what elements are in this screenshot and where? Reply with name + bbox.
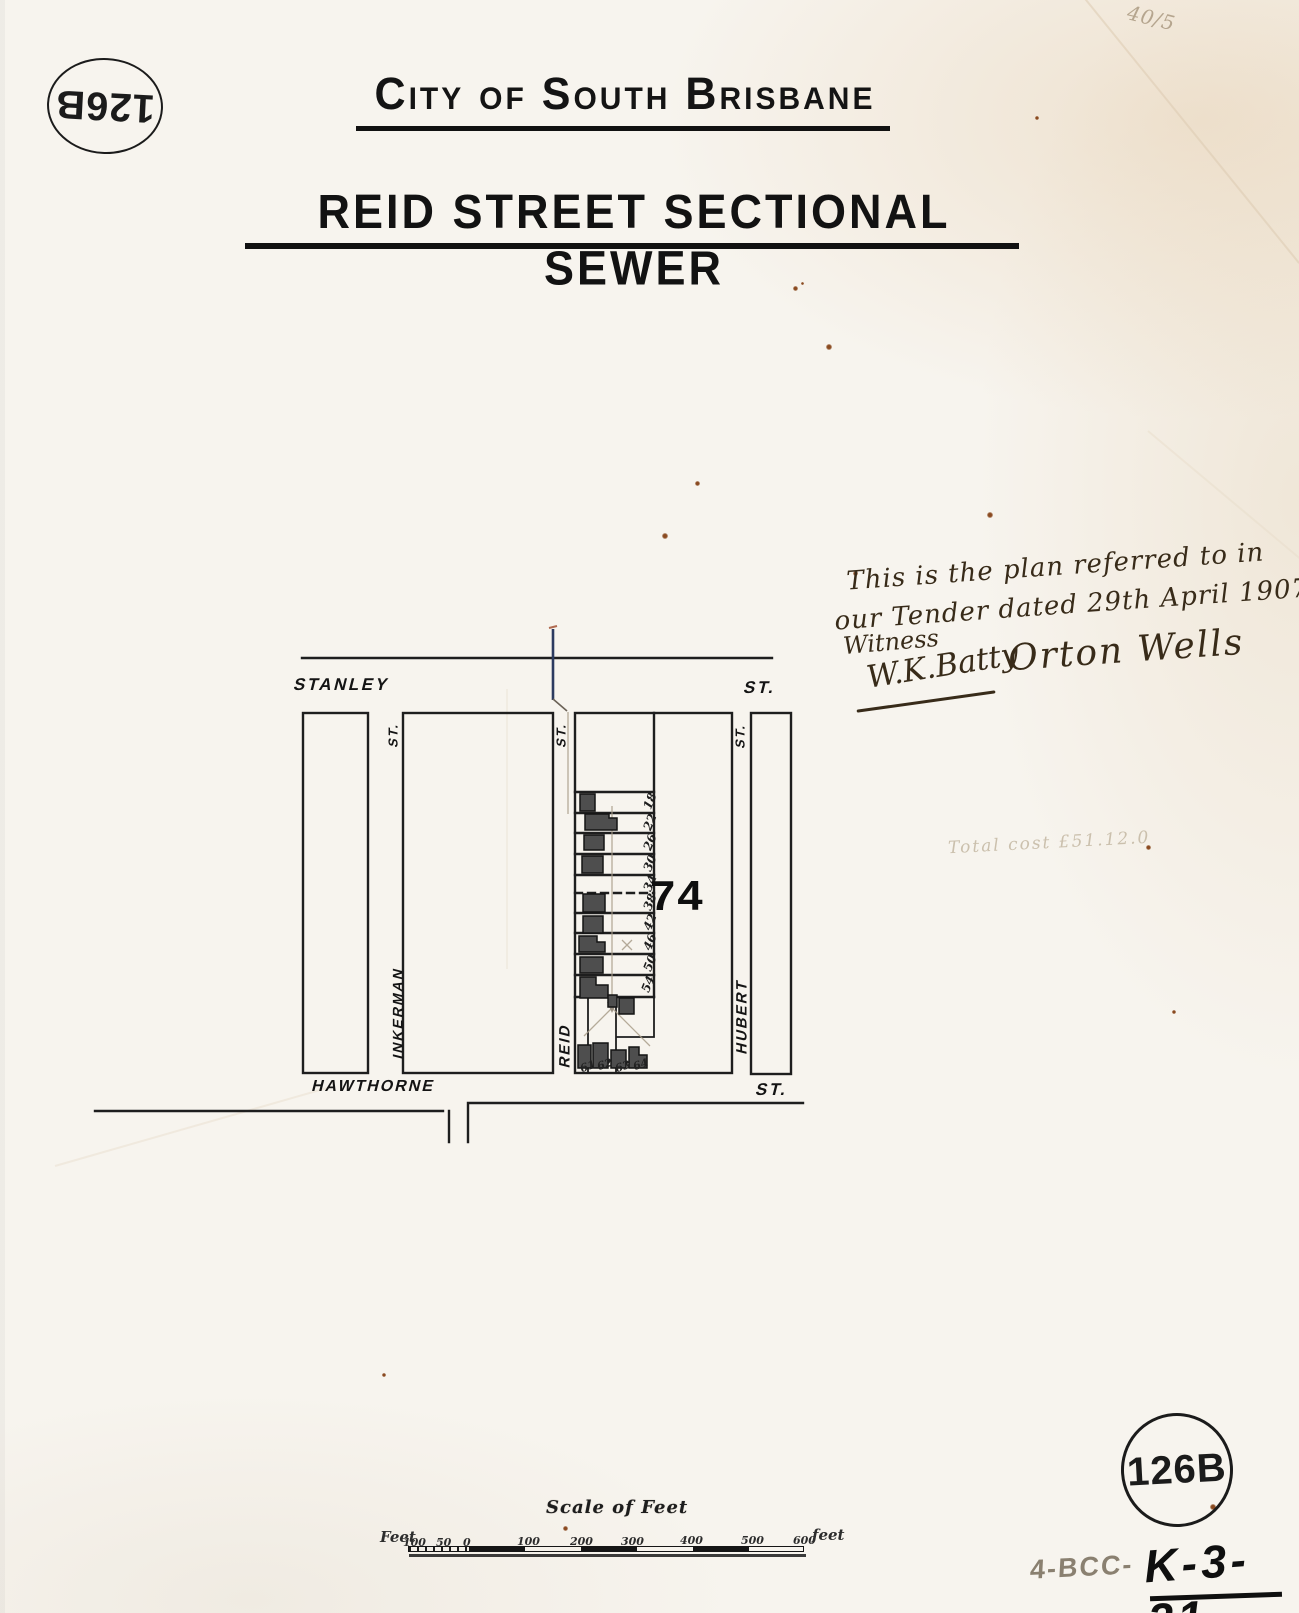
subtitle-underline: [245, 243, 1019, 249]
lot-number: 64: [631, 1056, 650, 1073]
stain-dot: [987, 512, 993, 518]
scale-bar-segment: [469, 1547, 525, 1551]
stain-dot: [382, 1373, 386, 1377]
stanley-st-abbrev: ST.: [742, 678, 779, 698]
hawthorne-street-label: HAWTHORNE: [310, 1078, 437, 1096]
building-footprints: [578, 794, 647, 1068]
lot-number: 22: [640, 811, 660, 833]
inkerman-street-label: INKERMAN: [390, 961, 405, 1065]
corner-pencil-note: 40/5: [1125, 0, 1178, 35]
lot-number: 62: [595, 1056, 614, 1073]
pencil-survey-marks: [568, 712, 650, 1046]
scale-bar-segment: [693, 1547, 749, 1551]
crease-line: [1081, 0, 1299, 264]
file-number-stamp-bottom-right: 126B: [1117, 1409, 1237, 1531]
page-title: City of South Brisbane: [330, 70, 920, 119]
scale-bar-title: Scale of Feet: [546, 1497, 688, 1518]
lot-number: 46: [640, 931, 660, 953]
scale-bar-shadow: [409, 1554, 806, 1557]
scale-unit-right: feet: [812, 1526, 844, 1544]
lot-number: 30: [640, 852, 660, 874]
scale-bar: [408, 1546, 804, 1552]
stain-dot: [563, 1526, 568, 1531]
stain-dot: [1035, 116, 1039, 120]
lot-number: 63: [613, 1058, 632, 1075]
allotment-number-74: 74: [650, 872, 705, 920]
file-number-stamp-top-left: 126B: [45, 55, 166, 157]
lot-number: 54: [638, 973, 658, 995]
contractor-signature: Orton Wells: [1007, 622, 1246, 679]
lot-number: 18: [640, 790, 660, 812]
stanley-street-label: STANLEY: [292, 675, 393, 695]
hubert-st-abbrev: ST.: [733, 718, 748, 754]
stain-dot: [826, 344, 832, 350]
inkerman-st-abbrev: ST.: [386, 717, 401, 753]
reference-number-pencil: 4-BCC-: [1029, 1549, 1134, 1586]
sewer-line: [549, 626, 567, 711]
file-number-text: 126B: [54, 81, 156, 131]
crease-line: [506, 689, 508, 969]
page-title-text: City of South Brisbane: [375, 69, 876, 121]
pencil-cost-note: Total cost £51.12.0: [948, 828, 1151, 859]
plan-subtitle: REID STREET SECTIONAL SEWER: [230, 188, 1038, 292]
lot-number: 50: [640, 952, 660, 974]
reid-street-label: REID: [558, 1017, 573, 1075]
lot-number: 26: [640, 831, 660, 853]
title-underline: [356, 126, 890, 131]
stain-dot: [1172, 1010, 1176, 1014]
stain-dot: [662, 533, 668, 539]
crease-line: [55, 1086, 330, 1166]
hubert-street-label: HUBERT: [735, 975, 750, 1059]
scale-bar-segment: [581, 1547, 637, 1551]
hawthorne-st-abbrev: ST.: [754, 1080, 791, 1100]
lot-number: 61: [578, 1058, 597, 1075]
stain-dot: [695, 481, 700, 486]
plan-sheet: 126B 40/5 City of South Brisbane REID ST…: [0, 0, 1299, 1613]
file-number-text: 126B: [1126, 1445, 1228, 1495]
reid-st-abbrev: ST.: [554, 717, 569, 753]
plan-subtitle-text: REID STREET SECTIONAL SEWER: [230, 184, 1038, 296]
